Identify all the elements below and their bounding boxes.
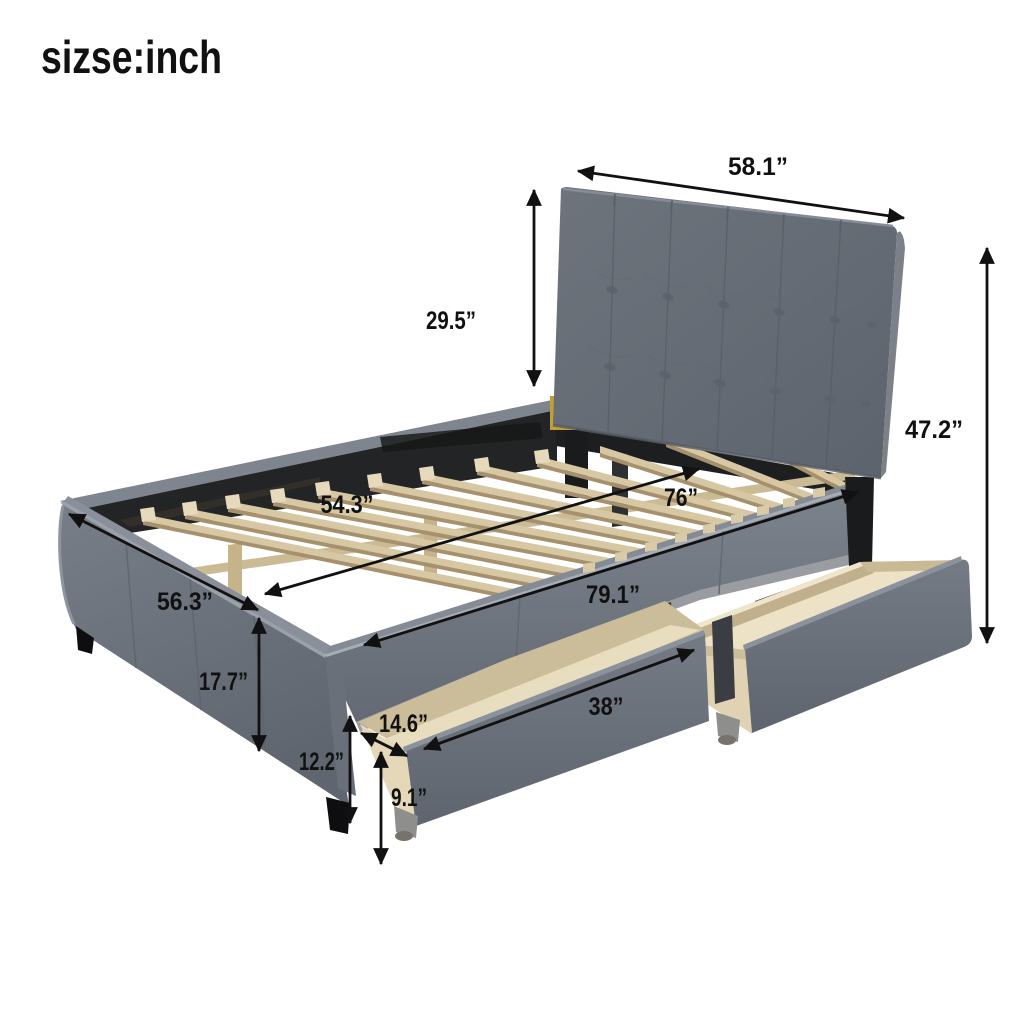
svg-text:79.1”: 79.1” (586, 581, 640, 609)
svg-text:sizse:inch: sizse:inch (41, 31, 222, 83)
svg-text:47.2”: 47.2” (905, 416, 963, 444)
svg-text:76”: 76” (664, 484, 698, 512)
svg-text:38”: 38” (589, 693, 624, 721)
svg-text:29.5”: 29.5” (426, 307, 476, 335)
svg-text:58.1”: 58.1” (728, 153, 788, 181)
svg-text:14.6”: 14.6” (379, 710, 428, 738)
svg-text:12.2”: 12.2” (299, 748, 344, 776)
svg-text:9.1”: 9.1” (391, 784, 427, 812)
svg-text:54.3”: 54.3” (321, 491, 374, 519)
svg-text:56.3”: 56.3” (157, 588, 213, 616)
svg-text:17.7”: 17.7” (199, 668, 248, 696)
